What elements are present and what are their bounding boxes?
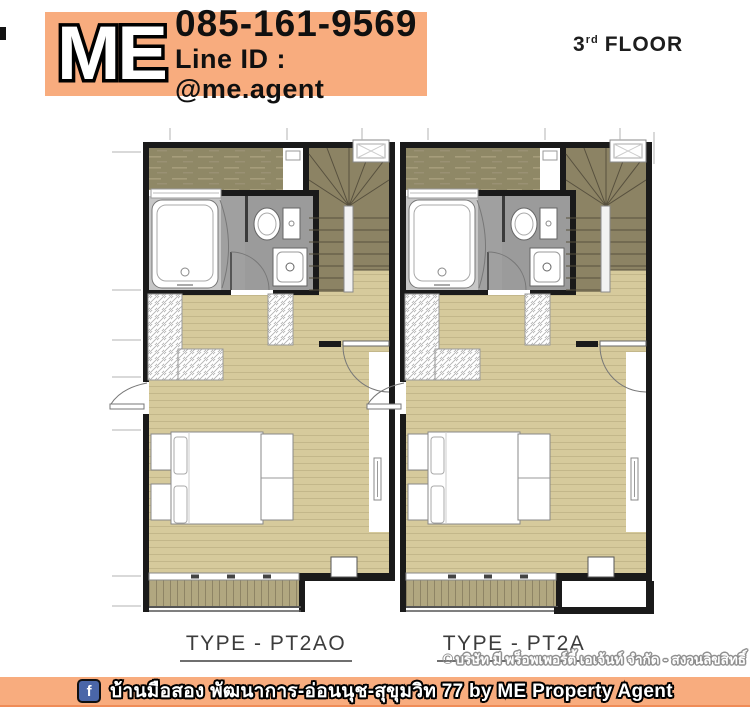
contact-block: 085-161-9569 Line ID : @me.agent: [175, 4, 427, 104]
line-id: Line ID : @me.agent: [175, 44, 427, 104]
edge-artifact-mark: [0, 27, 6, 40]
me-logo-fill: ME: [57, 16, 165, 92]
phone-number: 085-161-9569: [175, 4, 427, 44]
floor-plan-unit-right: [367, 140, 652, 612]
floor-word: FLOOR: [605, 33, 684, 56]
facebook-page-name: บ้านมือสอง พัฒนาการ-อ่อนนุช-สุขุมวิท 77 …: [110, 676, 673, 706]
terrace-wall: [554, 607, 654, 614]
flyer-page: ME ME 085-161-9569 Line ID : @me.agent 3…: [0, 0, 750, 707]
copyright-text: บริษัท มี พร็อพเพอร์ตี้ เอเจ้นท์ จำกัด -…: [455, 652, 746, 667]
me-logo: ME ME: [57, 16, 165, 92]
copyright-line: ©บริษัท มี พร็อพเพอร์ตี้ เอเจ้นท์ จำกัด …: [442, 648, 746, 670]
floor-plan-unit-left: [110, 140, 395, 612]
copyright-icon: ©: [442, 651, 453, 668]
floor-number: 3: [573, 33, 586, 56]
unit-type-label-left: TYPE - PT2AO: [161, 632, 371, 662]
brand-banner: ME ME 085-161-9569 Line ID : @me.agent: [45, 12, 427, 96]
facebook-icon: f: [77, 679, 101, 703]
floor-suffix: rd: [586, 34, 599, 46]
floor-label: 3rdFLOOR: [573, 33, 683, 57]
facebook-banner: f บ้านมือสอง พัฒนาการ-อ่อนนุช-สุขุมวิท 7…: [0, 677, 750, 707]
floor-plan: [0, 128, 750, 648]
